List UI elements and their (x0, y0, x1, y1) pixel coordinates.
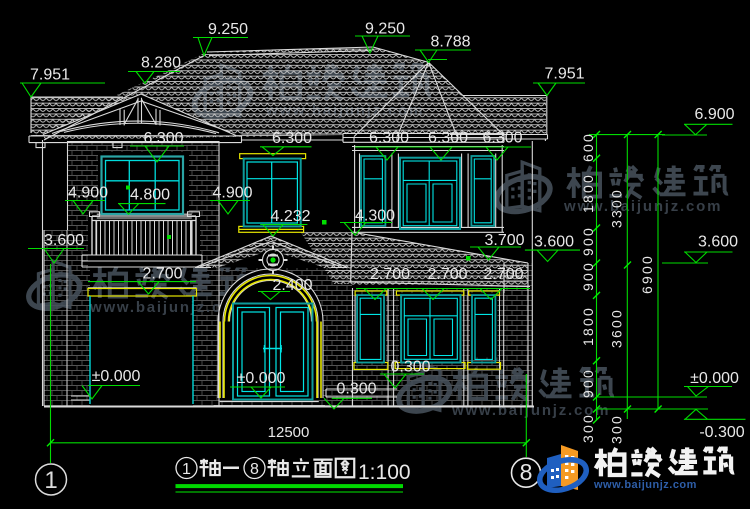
svg-text:8: 8 (250, 461, 259, 478)
svg-text:6.300: 6.300 (272, 130, 312, 147)
svg-text:2.400: 2.400 (272, 277, 312, 294)
svg-text:8: 8 (520, 459, 533, 485)
svg-text:1800: 1800 (580, 173, 596, 213)
svg-text:900: 900 (580, 226, 596, 256)
svg-text:3.700: 3.700 (484, 232, 524, 249)
svg-text:2.700: 2.700 (142, 266, 182, 283)
svg-text:4.900: 4.900 (68, 185, 108, 202)
svg-text:1800: 1800 (580, 306, 596, 346)
svg-text:4.300: 4.300 (355, 208, 395, 225)
svg-text:6.300: 6.300 (482, 130, 522, 147)
svg-text:600: 600 (580, 132, 596, 162)
svg-text:6.900: 6.900 (694, 106, 734, 123)
svg-text:3600: 3600 (609, 308, 625, 348)
svg-text:3.600: 3.600 (698, 234, 738, 251)
svg-text:900: 900 (580, 261, 596, 291)
svg-text:1: 1 (182, 461, 191, 478)
svg-text:300: 300 (580, 413, 596, 443)
svg-text:3.600: 3.600 (44, 232, 84, 249)
svg-text:6.300: 6.300 (369, 130, 409, 147)
svg-text:-0.300: -0.300 (699, 424, 744, 441)
svg-text:7.951: 7.951 (544, 66, 584, 83)
svg-text:3300: 3300 (609, 188, 625, 228)
svg-text:7.951: 7.951 (30, 67, 70, 84)
svg-text:8.280: 8.280 (141, 55, 181, 72)
svg-text:3.600: 3.600 (534, 234, 574, 251)
svg-text:0.300: 0.300 (336, 381, 376, 398)
svg-text:300: 300 (609, 414, 625, 444)
svg-text:2.700: 2.700 (483, 266, 523, 283)
svg-text:6.300: 6.300 (428, 130, 468, 147)
svg-text:www.baijunjz.com: www.baijunjz.com (593, 479, 697, 491)
svg-text:1: 1 (44, 467, 57, 494)
svg-text:12500: 12500 (268, 424, 310, 441)
svg-text:6.300: 6.300 (143, 130, 183, 147)
svg-text:±0.000: ±0.000 (690, 370, 739, 387)
svg-text:4.800: 4.800 (130, 187, 170, 204)
svg-text:4.900: 4.900 (212, 185, 252, 202)
svg-text:0.300: 0.300 (390, 359, 430, 376)
svg-text:900: 900 (580, 368, 596, 398)
svg-text:2.700: 2.700 (370, 266, 410, 283)
svg-text:±0.000: ±0.000 (237, 370, 286, 387)
svg-text:4.232: 4.232 (270, 208, 310, 225)
svg-text:9.250: 9.250 (208, 21, 248, 38)
svg-text:8.788: 8.788 (430, 34, 470, 51)
svg-text:2.700: 2.700 (427, 266, 467, 283)
svg-text:1:100: 1:100 (358, 461, 411, 484)
svg-text:9.250: 9.250 (365, 21, 405, 38)
svg-text:±0.000: ±0.000 (92, 368, 141, 385)
svg-text:6900: 6900 (639, 254, 655, 294)
